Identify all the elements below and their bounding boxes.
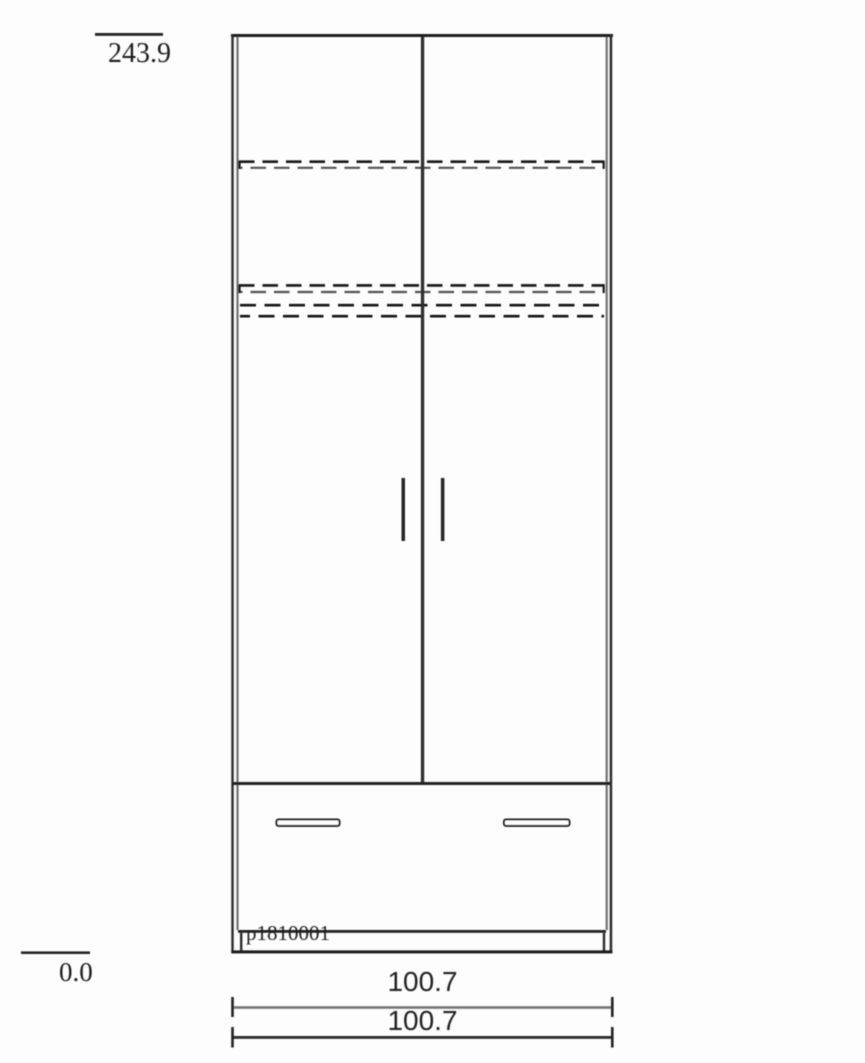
svg-text:100.7: 100.7 <box>387 966 457 997</box>
svg-text:100.7: 100.7 <box>387 1005 457 1036</box>
svg-text:p1810001: p1810001 <box>246 921 330 945</box>
svg-text:0.0: 0.0 <box>59 957 93 987</box>
svg-text:243.9: 243.9 <box>108 38 171 69</box>
